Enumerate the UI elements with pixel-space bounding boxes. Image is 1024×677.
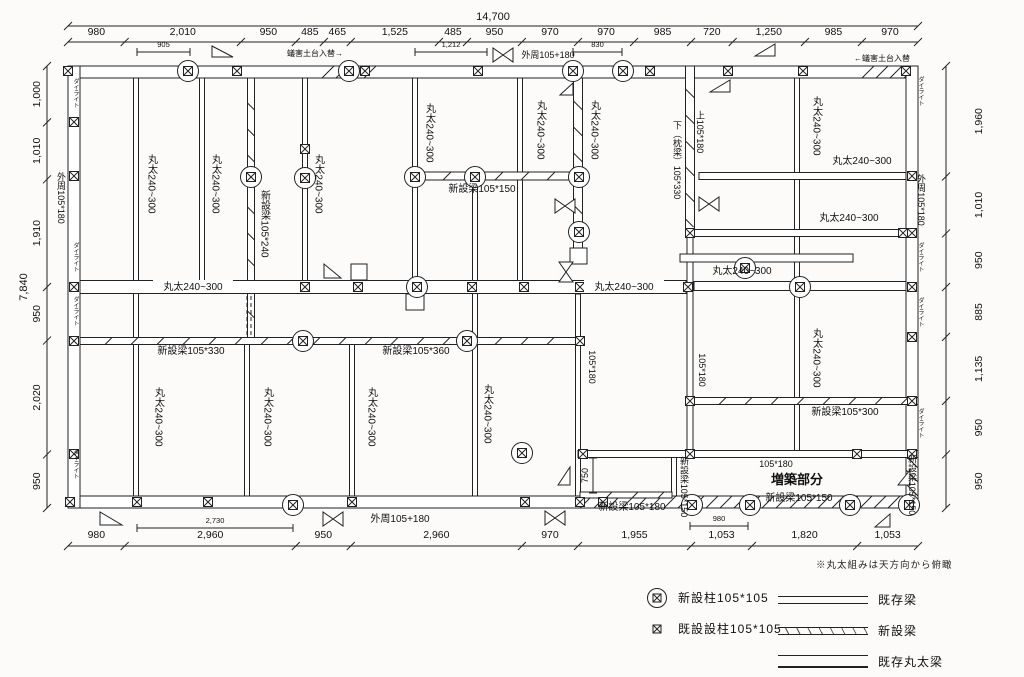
legend-new-post-label: 新設柱105*105 bbox=[678, 589, 769, 606]
plan-label: 丸太240~300 bbox=[482, 383, 494, 444]
log-beam bbox=[576, 294, 581, 496]
dim-label: 950 bbox=[31, 305, 43, 323]
plan-label: ダイライト bbox=[72, 77, 79, 108]
level-triangle-mark bbox=[100, 512, 122, 525]
dim-label: 1,000 bbox=[31, 81, 43, 107]
log-beam bbox=[200, 78, 205, 281]
subdim-label: 905 bbox=[157, 40, 170, 49]
plan-label: 新設梁105*180 bbox=[598, 500, 666, 513]
plan-label: 新設梁105*300 bbox=[811, 405, 879, 418]
plan-label: 新設梁105*150 bbox=[907, 454, 917, 516]
log-beam bbox=[699, 173, 906, 180]
dim-label: 1,820 bbox=[791, 529, 817, 541]
log-beam bbox=[578, 451, 918, 458]
dim-label: 485 bbox=[301, 26, 319, 38]
bowtie-mark bbox=[323, 512, 333, 526]
plan-label: ダイライト bbox=[72, 448, 79, 479]
plan-label: 丸太240~300 bbox=[832, 154, 892, 167]
bowtie-mark bbox=[333, 512, 343, 526]
plan-label: 丸太240~300 bbox=[313, 153, 325, 214]
log-beam bbox=[672, 457, 677, 496]
legend-new-beam-label: 新設梁 bbox=[878, 622, 917, 639]
bowtie-mark bbox=[699, 197, 709, 211]
dim-total-label: 7,840 bbox=[18, 273, 30, 301]
dim-label: 1,010 bbox=[973, 192, 985, 218]
plan-label: ダイライト bbox=[917, 241, 924, 272]
plan-label: 丸太240~300 bbox=[146, 153, 158, 214]
dim-label: 1,955 bbox=[621, 529, 647, 541]
plan-label: 105*180 bbox=[697, 353, 707, 387]
existing-beam-line-icon bbox=[778, 596, 868, 604]
dim-label: 2,010 bbox=[170, 26, 196, 38]
legend-existing-beam-label: 既存梁 bbox=[878, 591, 917, 608]
plan-label: 蟻害土台入替→ bbox=[287, 48, 343, 58]
dim-label: 980 bbox=[88, 529, 106, 541]
level-triangle-mark bbox=[558, 467, 570, 485]
dim-label: 950 bbox=[260, 26, 278, 38]
level-triangle-mark bbox=[212, 46, 233, 57]
dim-label: 970 bbox=[597, 26, 615, 38]
subdim-label: 1,212 bbox=[442, 40, 461, 49]
bowtie-mark bbox=[565, 199, 575, 213]
dim-total-label: 14,700 bbox=[476, 11, 510, 23]
dim-label: 1,053 bbox=[708, 529, 734, 541]
plan-label: 丸太240~300 bbox=[210, 153, 222, 214]
dim-label: 485 bbox=[444, 26, 462, 38]
dim-label: 950 bbox=[31, 472, 43, 490]
level-triangle-mark bbox=[755, 44, 775, 56]
plan-label: 丸太240~300 bbox=[819, 211, 879, 224]
new-beam-line-icon bbox=[778, 627, 868, 635]
plan-label: 丸太240~300 bbox=[594, 280, 654, 293]
legend-existing-post-label: 既設設柱105*105 bbox=[678, 620, 782, 637]
dim-label: 1,525 bbox=[382, 26, 408, 38]
dim-label: 1,960 bbox=[973, 108, 985, 134]
plan-label: 新設梁105*150 bbox=[765, 491, 833, 504]
subdim-label: 750 bbox=[580, 468, 590, 483]
plan-label: ダイライト bbox=[72, 241, 79, 272]
dim-label: 2,960 bbox=[423, 529, 449, 541]
plan-label: 丸太240~300 bbox=[535, 99, 547, 160]
dim-label: 1,135 bbox=[973, 356, 985, 382]
subdim-label: 980 bbox=[713, 514, 726, 523]
plan-label: ダイライト bbox=[72, 295, 79, 326]
level-triangle-mark bbox=[875, 514, 890, 527]
level-triangle-mark bbox=[710, 80, 730, 92]
legend-lines: 既存梁 新設梁 既存丸太梁 bbox=[778, 584, 943, 677]
existing-post-icon bbox=[645, 617, 669, 641]
bowtie-mark bbox=[555, 511, 565, 525]
legend-item-new-post: 新設柱105*105 bbox=[645, 582, 782, 613]
dim-label: 950 bbox=[973, 419, 985, 437]
dim-label: 1,910 bbox=[31, 220, 43, 246]
plan-label: 105*180 bbox=[587, 350, 597, 384]
plan-label: 新設梁105*150 bbox=[679, 456, 689, 518]
plan-label: 丸太240~300 bbox=[811, 327, 823, 388]
plan-label: 外周105+180 bbox=[370, 513, 430, 525]
plan-label: 丸太240~300 bbox=[424, 102, 436, 163]
log-beam bbox=[350, 344, 355, 496]
legend-existing-log-beam-label: 既存丸太梁 bbox=[878, 653, 943, 670]
legend-item-existing-beam: 既存梁 bbox=[778, 584, 943, 615]
dim-label: 970 bbox=[541, 26, 559, 38]
plan-label: 丸太240~300 bbox=[262, 386, 274, 447]
legend-item-existing-log-beam: 既存丸太梁 bbox=[778, 646, 943, 677]
log-beam bbox=[680, 254, 853, 262]
subdim-label: 2,730 bbox=[206, 516, 225, 525]
bowtie-mark bbox=[503, 48, 513, 62]
plan-label: 丸太240~300 bbox=[589, 99, 601, 160]
legend-note: ※丸太組みは天方向から俯瞰 bbox=[816, 557, 1006, 571]
bowtie-mark bbox=[545, 511, 555, 525]
beam-end-block bbox=[351, 264, 367, 280]
plan-label: 新設梁105*240 bbox=[259, 189, 271, 258]
log-beam bbox=[245, 344, 250, 496]
plan-svg: 蟻害土台入替→外周105+180←蟻害土台入替新設梁105*150丸太240~3… bbox=[0, 0, 1024, 676]
plan-label: 丸太240~300 bbox=[712, 264, 772, 277]
plan-label: 丸太240~300 bbox=[153, 386, 165, 447]
dim-label: 465 bbox=[329, 26, 347, 38]
bowtie-mark bbox=[709, 197, 719, 211]
new-beam bbox=[694, 398, 918, 405]
bowtie-mark bbox=[559, 272, 573, 282]
plan-label: 外周105*180 bbox=[916, 173, 926, 226]
new-post-icon bbox=[645, 586, 669, 610]
plan-label: 外周105*180 bbox=[56, 171, 66, 224]
existing-log-beam-line-icon bbox=[778, 655, 868, 668]
dim-label: 950 bbox=[973, 472, 985, 490]
plan-label: 105*180 bbox=[759, 459, 793, 469]
dim-label: 1,250 bbox=[756, 26, 782, 38]
level-triangle-mark bbox=[324, 264, 341, 278]
dim-label: 2,020 bbox=[31, 384, 43, 410]
dim-label: 970 bbox=[541, 529, 559, 541]
plan-label: 新設梁105*150 bbox=[448, 182, 516, 195]
log-beam bbox=[687, 233, 693, 451]
new-beam bbox=[80, 338, 578, 345]
log-beam bbox=[694, 230, 906, 237]
dim-label: 950 bbox=[315, 529, 333, 541]
dim-label: 985 bbox=[654, 26, 672, 38]
plan-label: 丸太240~300 bbox=[811, 95, 823, 156]
plan-label: 上105*180 bbox=[695, 111, 705, 154]
plan-label: 丸太240~300 bbox=[163, 280, 223, 293]
legend-item-new-beam: 新設梁 bbox=[778, 615, 943, 646]
legend-posts: 新設柱105*105 既設設柱105*105 bbox=[645, 582, 782, 644]
dim-label: 885 bbox=[973, 303, 985, 321]
dim-label: 1,010 bbox=[31, 138, 43, 164]
plan-label: 新設梁105*330 bbox=[157, 344, 225, 357]
plan-label: ←蟻害土台入替 bbox=[854, 53, 910, 63]
dim-label: 980 bbox=[88, 26, 106, 38]
dim-label: 950 bbox=[486, 26, 504, 38]
bowtie-mark bbox=[555, 199, 565, 213]
plan-label: 新設梁105*360 bbox=[382, 344, 450, 357]
plan-label: ダイライト bbox=[917, 75, 924, 106]
plan-label: 下（枕梁）105*330 bbox=[672, 121, 682, 200]
dim-label: 970 bbox=[881, 26, 899, 38]
plan-label: ダイライト bbox=[917, 296, 924, 327]
log-beam bbox=[795, 78, 800, 451]
bowtie-mark bbox=[559, 262, 573, 272]
dim-label: 985 bbox=[825, 26, 843, 38]
dim-label: 2,960 bbox=[197, 529, 223, 541]
dim-label: 950 bbox=[973, 251, 985, 269]
legend-item-existing-post: 既設設柱105*105 bbox=[645, 613, 782, 644]
dim-label: 720 bbox=[703, 26, 721, 38]
plan-label: 外周105+180 bbox=[521, 49, 574, 60]
plan-label: 丸太240~300 bbox=[366, 386, 378, 447]
bowtie-mark bbox=[493, 48, 503, 62]
plan-label: ダイライト bbox=[917, 407, 924, 438]
subdim-label: 830 bbox=[591, 40, 604, 49]
level-triangle-mark bbox=[560, 83, 573, 95]
plan-label: 増築部分 bbox=[771, 472, 823, 487]
dim-label: 1,053 bbox=[874, 529, 900, 541]
